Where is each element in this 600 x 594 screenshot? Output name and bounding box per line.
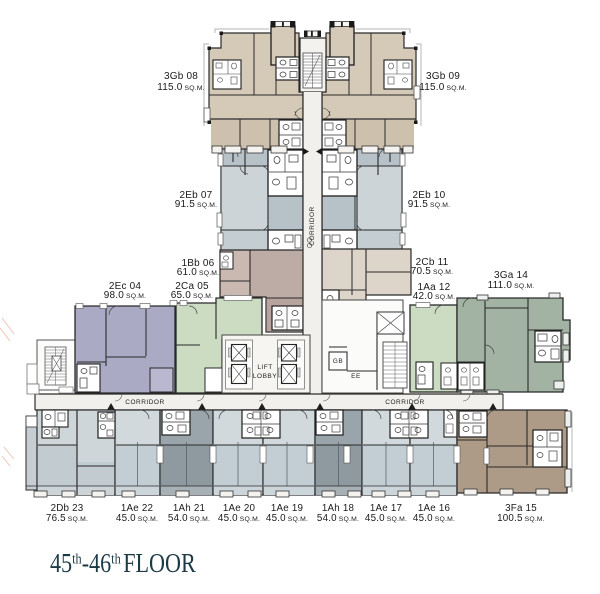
svg-text:3Gb 08: 3Gb 08 bbox=[164, 71, 198, 82]
svg-text:CORRIDOR: CORRIDOR bbox=[385, 399, 424, 406]
svg-text:LOBBY: LOBBY bbox=[253, 373, 277, 380]
svg-text:3Gb 09: 3Gb 09 bbox=[426, 71, 460, 82]
svg-text:45th-46thFLOOR: 45th-46thFLOOR bbox=[50, 549, 196, 579]
svg-text:CORRIDOR: CORRIDOR bbox=[125, 399, 164, 406]
svg-text:LIFT: LIFT bbox=[257, 364, 272, 371]
svg-text:GB: GB bbox=[333, 358, 343, 365]
svg-text:CORRIDOR: CORRIDOR bbox=[309, 206, 316, 245]
svg-text:EE: EE bbox=[351, 373, 361, 380]
